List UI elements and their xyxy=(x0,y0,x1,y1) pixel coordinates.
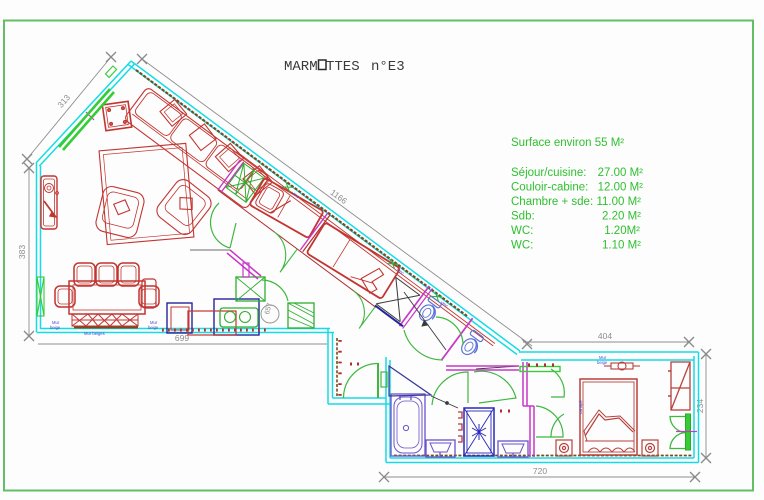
svg-text:WC:: WC: xyxy=(511,240,533,252)
svg-text:699: 699 xyxy=(175,333,189,343)
svg-text:2.20 M²: 2.20 M² xyxy=(602,211,641,223)
svg-text:TTES: TTES xyxy=(326,59,360,75)
svg-text:27.00 M²: 27.00 M² xyxy=(598,167,644,179)
svg-text:beige: beige xyxy=(597,360,608,365)
svg-text:720: 720 xyxy=(533,466,547,476)
svg-text:Surface environ 55 M²: Surface environ 55 M² xyxy=(511,137,624,149)
svg-text:beige: beige xyxy=(148,325,159,330)
svg-text:12.00 M²: 12.00 M² xyxy=(598,182,644,194)
svg-text:Mur beiges: Mur beiges xyxy=(84,331,105,336)
svg-text:Sdb:: Sdb: xyxy=(511,211,535,223)
svg-text:canapé: canapé xyxy=(578,400,583,414)
svg-text:n°E3: n°E3 xyxy=(371,59,405,75)
svg-text:383: 383 xyxy=(17,245,27,259)
svg-text:404: 404 xyxy=(598,331,612,341)
svg-text:1.10 M²: 1.10 M² xyxy=(602,240,641,252)
svg-text:Chambre + sde:: Chambre + sde: xyxy=(511,196,593,208)
svg-text:1.20M²: 1.20M² xyxy=(604,225,640,237)
svg-text:234: 234 xyxy=(695,399,705,413)
svg-text:WC:: WC: xyxy=(511,225,533,237)
svg-text:Séjour/cuisine:: Séjour/cuisine: xyxy=(511,167,586,179)
svg-text:Couloir-cabine:: Couloir-cabine: xyxy=(511,182,588,194)
svg-text:beige: beige xyxy=(50,325,61,330)
svg-text:11.00 M²: 11.00 M² xyxy=(596,196,641,208)
svg-text:MARM: MARM xyxy=(284,59,318,75)
